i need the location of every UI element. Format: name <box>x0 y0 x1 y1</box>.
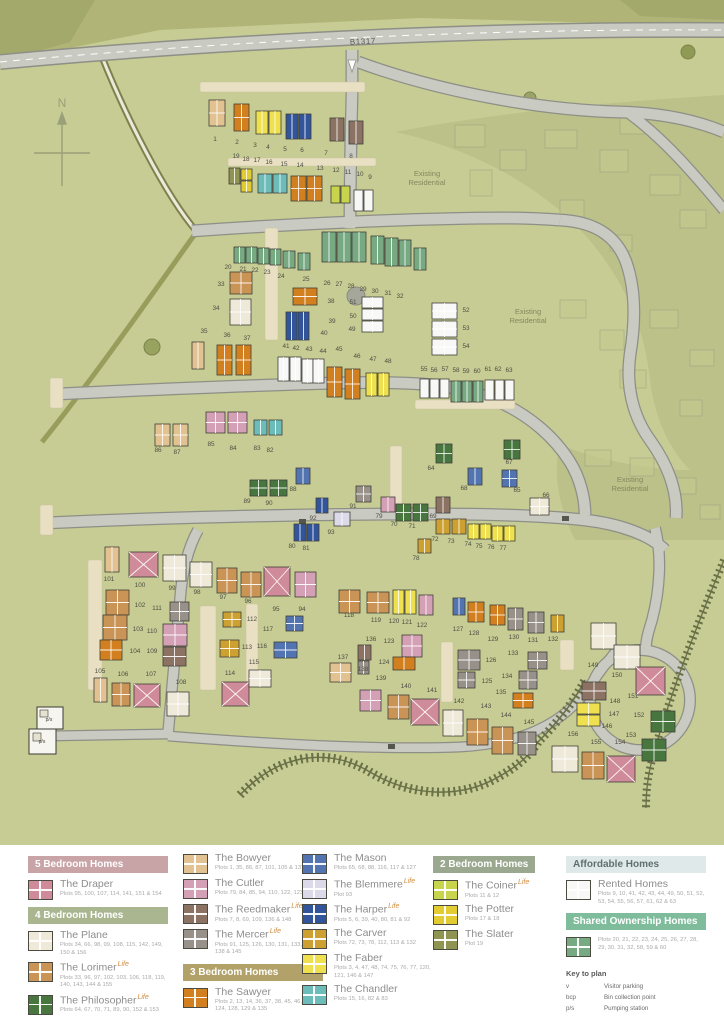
key-row: bcpBin collection point <box>566 994 706 1001</box>
plot-number: 16 <box>265 159 273 166</box>
plot-number: 152 <box>634 712 645 719</box>
plot-number: 9 <box>368 174 372 181</box>
plot-number: 126 <box>486 657 497 664</box>
key-to-plan-title: Key to plan <box>566 969 706 978</box>
plot-number: 69 <box>429 513 437 520</box>
legend-item: The LorimerLifePlots 33, 96, 97, 102, 10… <box>28 961 168 990</box>
plot-number: 128 <box>469 630 480 637</box>
plot-number: 153 <box>626 732 637 739</box>
plot-number: 144 <box>501 712 512 719</box>
plot-number: 21 <box>239 266 247 273</box>
house-type-name: The HarperLife <box>334 903 410 916</box>
plot-number: 103 <box>133 626 144 633</box>
house-type-icon <box>183 904 208 924</box>
plot-number: 142 <box>454 698 465 705</box>
house-type-name: Rented Homes <box>598 879 706 890</box>
plot-number: 86 <box>154 447 162 454</box>
plot-number: 68 <box>460 485 468 492</box>
legend-panel: 5 Bedroom HomesThe DraperPlots 95, 100, … <box>0 845 724 1024</box>
plot-number: 148 <box>610 698 621 705</box>
house-type-name: The BlemmereLife <box>334 878 415 891</box>
plot-number: 33 <box>217 281 225 288</box>
house-type-name: The LorimerLife <box>60 961 168 974</box>
house-type-plots: Plot 93 <box>334 892 415 900</box>
plot-number: 52 <box>462 307 470 314</box>
house-type-icon <box>302 954 327 974</box>
legend-item-text: The PlanePlots 34, 66, 98, 99, 108, 115,… <box>60 930 168 957</box>
plot-number: 137 <box>338 654 349 661</box>
plot-number: 55 <box>420 366 428 373</box>
legend-item: The HarperLifePlots 5, 6, 39, 40, 80, 81… <box>302 903 442 924</box>
plot-number: 141 <box>427 687 438 694</box>
plot-number: 4 <box>266 144 270 151</box>
plot-number: 38 <box>327 298 335 305</box>
plot-number: 89 <box>243 498 251 505</box>
plot-number: 104 <box>130 648 141 655</box>
plot-number: 5 <box>283 146 287 153</box>
legend-item: The CoinerLifePlots 11 & 12 <box>433 879 535 900</box>
plot-house <box>354 190 363 211</box>
house-type-icon <box>302 854 327 874</box>
house-type-name: The Mason <box>334 853 416 864</box>
map-label: Existing <box>515 307 541 316</box>
house-type-name: The Potter <box>465 904 514 915</box>
plot-number: 24 <box>277 273 285 280</box>
house-type-plots: Plots 17 & 18 <box>465 916 514 924</box>
legend-item-text: Plots 20, 21, 22, 23, 24, 25, 26, 27, 28… <box>598 936 706 952</box>
legend-item: The SlaterPlot 19 <box>433 929 535 950</box>
house-type-icon <box>28 962 53 982</box>
legend-item-text: The BlemmereLifePlot 93 <box>334 878 415 899</box>
plot-house <box>505 380 514 400</box>
plot-number: 125 <box>482 678 493 685</box>
plot-number: 90 <box>265 500 273 507</box>
plot-number: 26 <box>323 280 331 287</box>
plot-number: 134 <box>502 673 513 680</box>
key-row: vVisitor parking <box>566 983 706 990</box>
plot-number: 34 <box>212 305 220 312</box>
plot-number: 118 <box>344 612 355 619</box>
legend-item-text: The ReedmakerLifePlots 7, 8, 69, 109, 13… <box>215 903 303 924</box>
plot-number: 54 <box>462 343 470 350</box>
plot-number: 91 <box>349 503 357 510</box>
plot-number: 116 <box>257 643 268 650</box>
plot-number: 22 <box>251 267 259 274</box>
house-type-name: The ReedmakerLife <box>215 903 303 916</box>
plot-number: 51 <box>349 299 357 306</box>
site-plan-map: 1234567891011121314151617181920212223242… <box>0 0 724 845</box>
plot-number: 143 <box>481 703 492 710</box>
legend-item-text: Rented HomesPlots 9, 10, 41, 42, 43, 44,… <box>598 879 706 906</box>
plot-number: 109 <box>147 648 158 655</box>
key-description: Pumping station <box>604 1005 648 1012</box>
plot-number: 156 <box>568 731 579 738</box>
house-type-icon <box>28 931 53 951</box>
plot-number: 97 <box>219 594 227 601</box>
house-type-name: The Draper <box>60 879 162 890</box>
house-type-icon <box>183 854 208 874</box>
house-type-plots: Plots 20, 21, 22, 23, 24, 25, 26, 27, 28… <box>598 937 706 952</box>
plot-number: 154 <box>615 739 626 746</box>
plot-number: 48 <box>384 358 392 365</box>
legend-item-text: The HarperLifePlots 5, 6, 39, 40, 80, 81… <box>334 903 410 924</box>
plot-number: 83 <box>253 445 261 452</box>
legend-item-text: The BowyerPlots 1, 35, 86, 87, 101, 105 … <box>215 853 304 873</box>
plot-number: 111 <box>152 605 162 612</box>
plot-number: 40 <box>320 330 328 337</box>
plot-number: 112 <box>247 616 258 623</box>
house-type-name: The Carver <box>334 928 416 939</box>
plot-number: 127 <box>453 626 464 633</box>
legend-item: The PotterPlots 17 & 18 <box>433 904 535 925</box>
plot-number: 15 <box>280 161 288 168</box>
house-type-plots: Plots 1, 35, 86, 87, 101, 105 & 137 <box>215 865 304 873</box>
plot-number: 44 <box>319 348 327 355</box>
map-label: p/s <box>39 739 46 745</box>
legend-item: The ChandlerPlots 15, 16, 82 & 83 <box>302 984 442 1005</box>
plot-number: 150 <box>612 672 623 679</box>
plot-number: 78 <box>412 555 420 562</box>
plot-number: 20 <box>224 264 232 271</box>
plot-number: 96 <box>244 598 252 605</box>
plot-number: 101 <box>104 576 115 583</box>
house-type-plots: Plots 33, 96, 97, 102, 103, 106, 118, 11… <box>60 975 168 990</box>
plot-house <box>440 379 449 398</box>
key-description: Bin collection point <box>604 994 656 1001</box>
plot-number: 35 <box>200 328 208 335</box>
plot-number: 1 <box>213 136 217 143</box>
plot-number: 45 <box>335 346 343 353</box>
house-type-icon <box>566 880 591 900</box>
plot-number: 129 <box>488 636 499 643</box>
plot-number: 136 <box>366 636 377 643</box>
legend-item: The CarverPlots 72, 73, 78, 112, 113 & 1… <box>302 928 442 949</box>
life-suffix: Life <box>404 878 415 885</box>
house-type-plots: Plots 9, 10, 41, 42, 43, 44, 49, 50, 51,… <box>598 891 706 906</box>
plot-number: 77 <box>499 545 507 552</box>
plot-number: 37 <box>243 335 251 342</box>
legend-item-text: The ChandlerPlots 15, 16, 82 & 83 <box>334 984 398 1004</box>
legend-item-text: The LorimerLifePlots 33, 96, 97, 102, 10… <box>60 961 168 990</box>
plot-number: 65 <box>513 487 521 494</box>
plot-number: 106 <box>118 671 129 678</box>
house-type-icon <box>28 880 53 900</box>
plot-number: 107 <box>146 671 157 678</box>
plot-number: 6 <box>300 147 304 154</box>
plot-number: 62 <box>494 366 502 373</box>
plot-number: 36 <box>223 332 231 339</box>
plot-number: 8 <box>349 153 353 160</box>
plot-number: 29 <box>359 286 367 293</box>
plot-number: 145 <box>524 719 535 726</box>
legend-item-text: The DraperPlots 95, 100, 107, 114, 141, … <box>60 879 162 899</box>
plot-number: 75 <box>475 543 483 550</box>
plot-number: 39 <box>328 318 336 325</box>
plot-number: 95 <box>272 606 280 613</box>
plot-number: 13 <box>316 165 324 172</box>
house-type-plots: Plots 72, 73, 78, 112, 113 & 132 <box>334 940 416 948</box>
plot-number: 58 <box>452 367 460 374</box>
plot-number: 30 <box>371 288 379 295</box>
plot-number: 121 <box>402 619 413 626</box>
plot-number: 84 <box>229 445 237 452</box>
house-type-icon <box>183 988 208 1008</box>
key-row: p/sPumping station <box>566 1005 706 1012</box>
plot-number: 23 <box>263 269 271 276</box>
map-label: B1317 <box>350 36 377 46</box>
plot-number: 17 <box>253 157 261 164</box>
house-type-plots: Plots 3, 4, 47, 48, 74, 75, 76, 77, 120,… <box>334 965 442 980</box>
plot-number: 110 <box>147 628 158 635</box>
plot-number: 73 <box>447 538 455 545</box>
legend-column: 5 Bedroom HomesThe DraperPlots 95, 100, … <box>28 853 168 1019</box>
legend-item: The MasonPlots 65, 68, 88, 116, 117 & 12… <box>302 853 442 874</box>
plot-number: 122 <box>417 622 428 629</box>
plot-number: 120 <box>389 618 400 625</box>
plot-number: 138 <box>358 666 369 673</box>
house-type-icon <box>302 904 327 924</box>
plot-number: 133 <box>508 650 519 657</box>
plot-number: 31 <box>384 290 392 297</box>
house-type-plots: Plots 65, 68, 88, 116, 117 & 127 <box>334 865 416 873</box>
plot-number: 74 <box>464 541 472 548</box>
key-abbreviation: bcp <box>566 994 604 1001</box>
plot-house <box>341 186 350 203</box>
plot-number: 92 <box>309 515 317 522</box>
plot-number: 12 <box>332 167 340 174</box>
house-type-plots: Plots 95, 100, 107, 114, 141, 151 & 154 <box>60 891 162 899</box>
legend-section-header: Shared Ownership Homes <box>566 913 706 930</box>
plot-number: 117 <box>263 626 274 633</box>
plot-number: 88 <box>289 486 297 493</box>
plot-number: 28 <box>347 283 355 290</box>
plot-number: 87 <box>173 449 181 456</box>
legend-item-text: The MasonPlots 65, 68, 88, 116, 117 & 12… <box>334 853 416 873</box>
plot-number: 124 <box>379 659 390 666</box>
plot-number: 64 <box>427 465 435 472</box>
house-type-plots: Plots 7, 8, 69, 109, 136 & 148 <box>215 917 303 925</box>
legend-section-header: 2 Bedroom Homes <box>433 856 535 873</box>
key-description: Visitor parking <box>604 983 643 990</box>
house-type-icon <box>183 929 208 949</box>
plot-number: 71 <box>408 523 416 530</box>
plot-number: 42 <box>292 345 300 352</box>
plot-number: 56 <box>430 367 438 374</box>
plot-number: 14 <box>296 162 304 169</box>
house-type-icon <box>302 929 327 949</box>
plot-number: 146 <box>602 723 613 730</box>
plot-number: 135 <box>496 689 507 696</box>
house-type-name: The Bowyer <box>215 853 304 864</box>
house-type-plots: Plots 34, 66, 98, 99, 108, 115, 142, 149… <box>60 942 168 957</box>
map-label: Residential <box>611 484 648 493</box>
house-type-name: The Faber <box>334 953 442 964</box>
plot-number: 94 <box>298 606 306 613</box>
plot-number: 93 <box>327 529 335 536</box>
house-type-plots: Plots 5, 6, 39, 40, 80, 81 & 92 <box>334 917 410 925</box>
house-type-icon <box>433 930 458 950</box>
plot-number: 59 <box>462 368 470 375</box>
plot-number: 43 <box>305 346 313 353</box>
plot-number: 82 <box>266 447 274 454</box>
house-type-name: The Slater <box>465 929 513 940</box>
plot-number: 66 <box>542 492 550 499</box>
house-type-icon <box>183 879 208 899</box>
plot-number: 27 <box>335 281 343 288</box>
plot-number: 60 <box>473 368 481 375</box>
plot-number: 100 <box>135 582 146 589</box>
legend-item: Rented HomesPlots 9, 10, 41, 42, 43, 44,… <box>566 879 706 906</box>
legend-column: The MasonPlots 65, 68, 88, 116, 117 & 12… <box>302 853 442 1009</box>
legend-item-text: The CoinerLifePlots 11 & 12 <box>465 879 529 900</box>
plot-number: 132 <box>548 636 559 643</box>
plot-number: 32 <box>396 293 404 300</box>
plot-number: 57 <box>441 366 449 373</box>
plot-number: 139 <box>376 675 387 682</box>
map-label: N <box>58 96 67 110</box>
plot-number: 151 <box>628 693 639 700</box>
plot-number: 47 <box>369 356 377 363</box>
legend-item-text: The PotterPlots 17 & 18 <box>465 904 514 924</box>
plot-number: 70 <box>390 521 398 528</box>
plot-house <box>485 380 494 400</box>
plot-number: 115 <box>249 659 260 666</box>
plot-number: 49 <box>348 326 356 333</box>
plot-number: 25 <box>302 276 310 283</box>
plot-house <box>331 186 340 203</box>
plot-number: 7 <box>324 150 328 157</box>
map-label: Existing <box>617 475 643 484</box>
life-suffix: Life <box>518 879 529 886</box>
plot-number: 63 <box>505 367 513 374</box>
house-type-name: The CoinerLife <box>465 879 529 892</box>
plot-number: 61 <box>484 366 492 373</box>
legend-item: The FaberPlots 3, 4, 47, 48, 74, 75, 76,… <box>302 953 442 980</box>
life-suffix: Life <box>270 928 281 935</box>
house-type-plots: Plots 64, 67, 70, 71, 89, 90, 152 & 153 <box>60 1007 159 1015</box>
plot-number: 130 <box>509 634 520 641</box>
house-type-plots: Plot 19 <box>465 941 513 949</box>
house-type-icon <box>433 880 458 900</box>
legend-column: 2 Bedroom HomesThe CoinerLifePlots 11 & … <box>433 853 535 954</box>
legend-item: Plots 20, 21, 22, 23, 24, 25, 26, 27, 28… <box>566 936 706 957</box>
legend-item: The PlanePlots 34, 66, 98, 99, 108, 115,… <box>28 930 168 957</box>
plot-house <box>420 379 429 398</box>
plot-number: 79 <box>375 513 383 520</box>
site-plan-svg: 1234567891011121314151617181920212223242… <box>0 0 724 845</box>
plot-number: 11 <box>345 169 352 176</box>
plot-number: 147 <box>609 711 620 718</box>
plot-number: 2 <box>235 139 239 146</box>
plot-number: 155 <box>591 739 602 746</box>
key-abbreviation: p/s <box>566 1005 604 1012</box>
legend-item: The BlemmereLifePlot 93 <box>302 878 442 899</box>
plot-number: 113 <box>242 644 253 651</box>
house-type-icon <box>566 937 591 957</box>
plot-number: 76 <box>487 544 495 551</box>
plot-number: 123 <box>384 638 395 645</box>
plot-number: 149 <box>588 662 599 669</box>
house-type-name: The Plane <box>60 930 168 941</box>
plot-number: 50 <box>349 313 357 320</box>
key-abbreviation: v <box>566 983 604 990</box>
plot-number: 114 <box>225 670 236 677</box>
legend-column: Affordable HomesRented HomesPlots 9, 10,… <box>566 853 706 1016</box>
plot-number: 108 <box>176 679 187 686</box>
map-label: Residential <box>509 316 546 325</box>
legend-item-text: The CarverPlots 72, 73, 78, 112, 113 & 1… <box>334 928 416 948</box>
legend-item-text: The PhilosopherLifePlots 64, 67, 70, 71,… <box>60 994 159 1015</box>
plot-number: 41 <box>282 343 290 350</box>
plot-number: 102 <box>135 602 146 609</box>
plot-number: 85 <box>207 441 215 448</box>
plot-house <box>495 380 504 400</box>
plot-number: 140 <box>401 683 412 690</box>
plot-number: 98 <box>193 589 201 596</box>
map-label: Residential <box>408 178 445 187</box>
house-type-name: The Chandler <box>334 984 398 995</box>
legend-item: The DraperPlots 95, 100, 107, 114, 141, … <box>28 879 168 900</box>
plot-number: 19 <box>232 153 240 160</box>
legend-section-header: 5 Bedroom Homes <box>28 856 168 873</box>
plot-number: 99 <box>168 585 176 592</box>
house-type-plots: Plots 11 & 12 <box>465 893 529 901</box>
site-plan-page: 1234567891011121314151617181920212223242… <box>0 0 724 1024</box>
house-type-icon <box>28 995 53 1015</box>
plot-house <box>430 379 439 398</box>
plot-number: 53 <box>462 325 470 332</box>
life-suffix: Life <box>388 903 399 910</box>
plot-number: 18 <box>242 156 250 163</box>
map-label: p/s <box>46 717 53 723</box>
plot-number: 46 <box>353 353 361 360</box>
house-type-name: The PhilosopherLife <box>60 994 159 1007</box>
plot-number: 105 <box>95 668 106 675</box>
plot-number: 72 <box>431 536 439 543</box>
life-suffix: Life <box>137 994 148 1001</box>
life-suffix: Life <box>118 961 129 968</box>
plot-number: 119 <box>371 617 382 624</box>
plot-number: 81 <box>302 545 310 552</box>
plot-number: 67 <box>505 459 513 466</box>
legend-section-header: Affordable Homes <box>566 856 706 873</box>
map-label: Existing <box>414 169 440 178</box>
legend-item-text: The SlaterPlot 19 <box>465 929 513 949</box>
legend-item-text: The FaberPlots 3, 4, 47, 48, 74, 75, 76,… <box>334 953 442 980</box>
legend-item: The PhilosopherLifePlots 64, 67, 70, 71,… <box>28 994 168 1015</box>
plot-number: 131 <box>528 637 539 644</box>
house-type-icon <box>302 879 327 899</box>
plot-house <box>364 190 373 211</box>
house-type-plots: Plots 15, 16, 82 & 83 <box>334 996 398 1004</box>
plot-number: 10 <box>356 171 364 178</box>
life-suffix: Life <box>291 903 302 910</box>
plot-number: 3 <box>253 142 257 149</box>
house-type-icon <box>433 905 458 925</box>
house-type-icon <box>302 985 327 1005</box>
legend-section-header: 4 Bedroom Homes <box>28 907 168 924</box>
plot-number: 80 <box>288 543 296 550</box>
